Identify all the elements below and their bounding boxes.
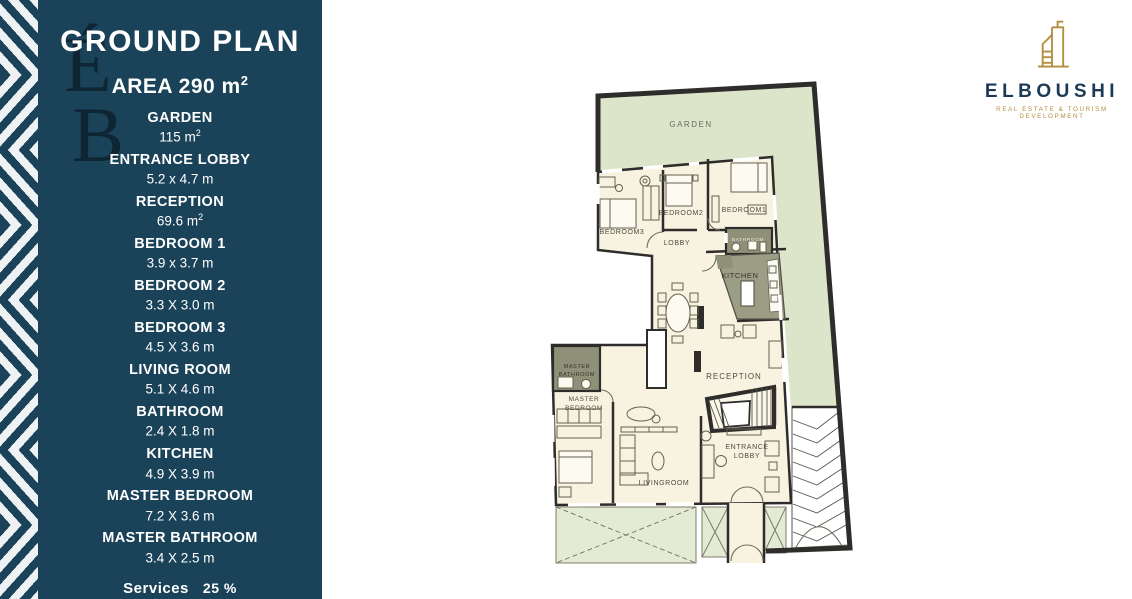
legend-item-bedroom-1: BEDROOM 1 3.9 x 3.7 m bbox=[38, 236, 322, 272]
legend-item-entrance-lobby: ENTRANCE LOBBY 5.2 x 4.7 m bbox=[38, 152, 322, 188]
room-label-master-bathroom-1: MASTER bbox=[564, 364, 591, 370]
legend-item-master-bathroom: MASTER BATHROOM 3.4 X 2.5 m bbox=[38, 530, 322, 566]
room-label-bedroom2: BEDROOM2 bbox=[659, 210, 704, 217]
room-label-livingroom: LIVINGROOM bbox=[639, 480, 690, 487]
room-label-bathroom: BATHROOM bbox=[732, 237, 764, 243]
ground-plan-sheet: GARDEN BEDROOM3 BEDROOM2 BEDROOM1 LOBBY … bbox=[0, 0, 1132, 599]
legend-items: GARDEN 115 m2 ENTRANCE LOBBY 5.2 x 4.7 m… bbox=[38, 110, 322, 567]
legend-item-reception: RECEPTION 69.6 m2 bbox=[38, 194, 322, 230]
shaft-void bbox=[647, 330, 666, 388]
stripe-band bbox=[0, 0, 38, 599]
column bbox=[694, 351, 701, 372]
legend-item-master-bedroom: MASTER BEDROOM 7.2 X 3.6 m bbox=[38, 488, 322, 524]
kitchen-corner-unit bbox=[716, 255, 733, 269]
legend-item-living-room: LIVING ROOM 5.1 X 4.6 m bbox=[38, 362, 322, 398]
legend-item-bathroom: BATHROOM 2.4 X 1.8 m bbox=[38, 404, 322, 440]
building-icon bbox=[1024, 18, 1080, 74]
room-label-lobby: LOBBY bbox=[664, 240, 690, 247]
room-label-entrance-lobby-2: LOBBY bbox=[734, 453, 760, 460]
logo-tagline: REAL ESTATE & TOURISM DEVELOPMENT bbox=[976, 106, 1128, 120]
legend-item-garden: GARDEN 115 m2 bbox=[38, 110, 322, 146]
total-area: AREA 290 m2 bbox=[38, 73, 322, 99]
room-label-bedroom3: BEDROOM3 bbox=[600, 229, 645, 236]
terrace-left bbox=[556, 507, 696, 563]
page-title: GROUND PLAN bbox=[38, 26, 322, 58]
developer-logo: ELBOUSHI REAL ESTATE & TOURISM DEVELOPME… bbox=[976, 18, 1128, 120]
logo-name: ELBOUSHI bbox=[976, 81, 1128, 103]
room-label-entrance-lobby-1: ENTRANCE bbox=[725, 444, 768, 451]
room-label-bedroom1: BEDROOM1 bbox=[722, 207, 767, 214]
room-label-garden: GARDEN bbox=[669, 120, 712, 129]
services-note: Services25 % bbox=[38, 580, 322, 597]
room-label-master-bathroom-2: BATHROOM bbox=[559, 372, 595, 378]
room-label-reception: RECEPTION bbox=[706, 372, 762, 381]
room-label-kitchen: KITCHEN bbox=[721, 271, 758, 280]
kitchen-island bbox=[741, 281, 754, 306]
room-label-master-bedroom-2: BEDROOM bbox=[565, 405, 603, 412]
room-label-master-bedroom-1: MASTER bbox=[569, 396, 600, 403]
legend-sidebar: É B GROUND PLAN AREA 290 m2 GARDEN 115 m… bbox=[0, 0, 322, 599]
legend-item-kitchen: KITCHEN 4.9 X 3.9 m bbox=[38, 446, 322, 482]
legend-item-bedroom-3: BEDROOM 3 4.5 X 3.6 m bbox=[38, 320, 322, 356]
legend-item-bedroom-2: BEDROOM 2 3.3 X 3.0 m bbox=[38, 278, 322, 314]
terrace-middle bbox=[702, 507, 728, 557]
terrace-right bbox=[764, 507, 786, 553]
